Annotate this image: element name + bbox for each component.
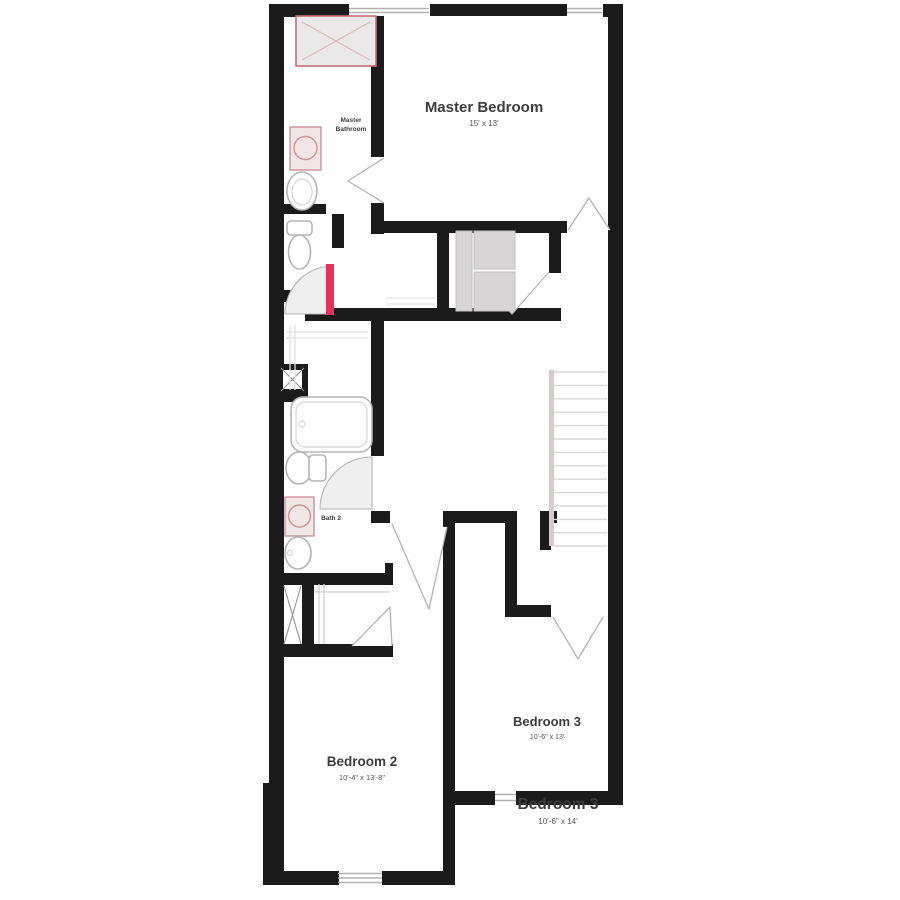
masterbath-stub-2 [332, 214, 344, 248]
bedroom3-north-wall [505, 605, 551, 617]
master-second-sink-icon [287, 172, 317, 210]
masterbath-door-swing [348, 158, 384, 203]
bedroom3-south-wall-a [455, 791, 495, 805]
bedroom2-dims: 10'-4" x 13'-8" [339, 773, 385, 782]
master-bedroom-door-swing [568, 198, 610, 230]
window-bedroom3 [495, 795, 516, 801]
bedroom3-label: Bedroom 3 [513, 714, 581, 729]
master-bathroom-label-line2: Bathroom [336, 126, 367, 133]
closet-east-stub [549, 225, 561, 273]
outer-wall-left-jog [263, 783, 271, 885]
walkin-closet-shelves [386, 231, 515, 311]
bedroom2-south-wall-a [269, 871, 339, 885]
master-toilet-icon [287, 221, 312, 269]
master-bathroom-label-line1: Master [341, 117, 362, 124]
bedroom3-callout-dims: 10'-6" x 14' [538, 817, 578, 826]
floorplan-page: Master Bedroom 15' x 13' Master Bathroom… [0, 0, 900, 900]
bedroom2-door-swing [392, 524, 447, 609]
vestibule-top-wall-a [371, 511, 390, 523]
closet2-door-swing [352, 607, 392, 646]
red-door-swing-arc [285, 266, 333, 314]
closet-divider-wall [437, 221, 449, 321]
bath2-label: Bath 2 [321, 515, 341, 522]
staircase-icon [549, 370, 607, 546]
closet-top-wall [277, 573, 393, 585]
stair-rail [549, 370, 554, 546]
outer-wall-left [269, 4, 284, 885]
window-top-1 [349, 9, 429, 13]
outer-wall-right [608, 4, 623, 805]
bedroom2-east-wall [443, 512, 455, 885]
bedroom2-label: Bedroom 2 [327, 754, 398, 769]
bedroom2-south-wall-b [382, 871, 455, 885]
master-bedroom-label: Master Bedroom [425, 99, 543, 116]
bath2-door-swing [320, 457, 372, 509]
closet-top-tick [385, 563, 393, 577]
hall-south-wall [305, 308, 561, 321]
master-bedroom-dims: 15' x 13' [469, 119, 499, 128]
outer-wall-top-a [269, 4, 349, 17]
bedroom3-dims: 10'-6" x 13' [530, 734, 564, 741]
window-top-2 [567, 9, 602, 13]
bedroom3-door-swing [553, 617, 603, 659]
bath2-toilet-icon [286, 452, 326, 484]
vestibule-east-wall [505, 511, 517, 617]
bedroom3-callout-label: Bedroom 3 [518, 796, 599, 813]
bath2-second-sink-icon [285, 537, 311, 569]
bath2-vanity-sink-icon [285, 497, 314, 536]
red-door [285, 264, 334, 315]
window-bedroom2 [338, 874, 382, 883]
master-vanity-sink-icon [290, 127, 321, 170]
floorplan-canvas: Master Bedroom 15' x 13' Master Bathroom… [0, 0, 900, 900]
bathtub-icon [291, 397, 372, 452]
closet-mid-wall [302, 582, 314, 650]
bath2-east-wall [371, 309, 384, 456]
shower-icon [296, 16, 376, 66]
vestibule-top-wall-b [443, 511, 506, 523]
red-door-leaf [326, 264, 334, 315]
outer-wall-top-b [430, 4, 567, 16]
